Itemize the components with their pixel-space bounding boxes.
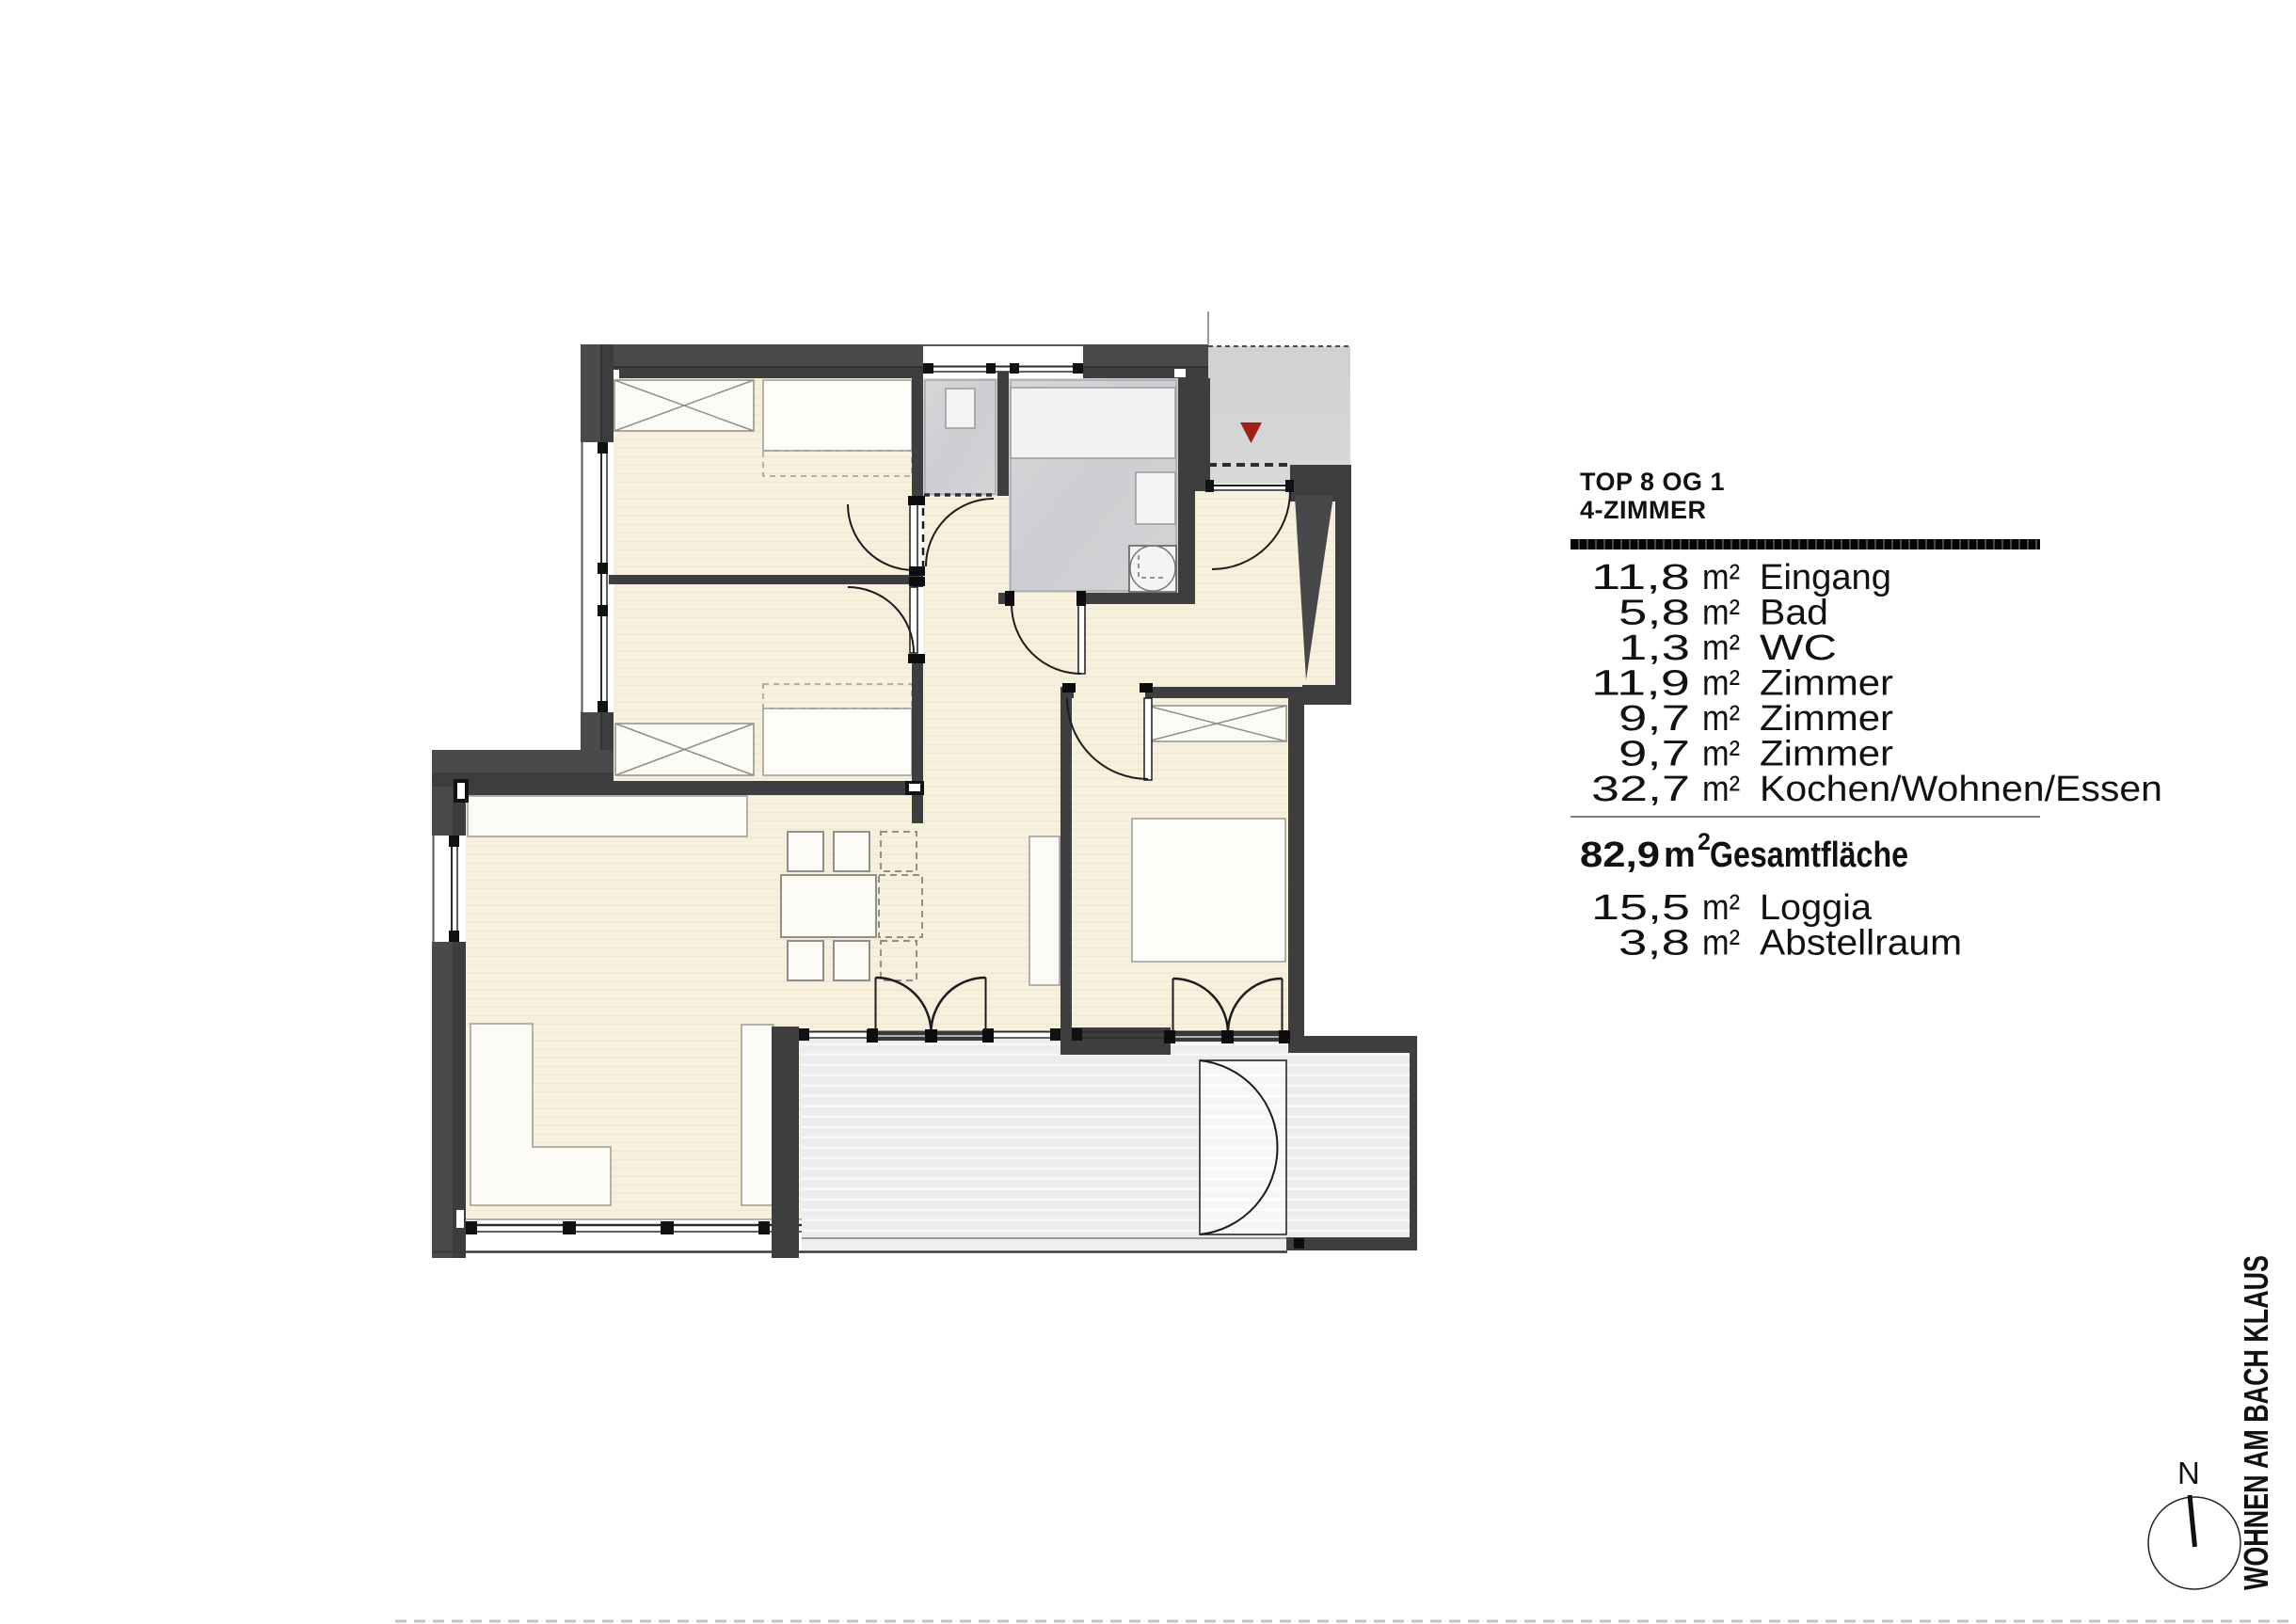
svg-text:TOP 8 OG 1: TOP 8 OG 1: [1580, 468, 1725, 496]
svg-text:Loggia: Loggia: [1760, 888, 1873, 928]
svg-text:Kochen/Wohnen/Essen: Kochen/Wohnen/Essen: [1760, 770, 2162, 809]
svg-text:9,7: 9,7: [1618, 735, 1690, 774]
svg-text:32,7: 32,7: [1591, 770, 1690, 809]
svg-text:WC: WC: [1760, 629, 1837, 668]
svg-text:m: m: [1664, 836, 1696, 875]
svg-text:N: N: [2177, 1456, 2200, 1490]
svg-text:5,8: 5,8: [1618, 594, 1690, 633]
svg-text:WOHNEN AM BACH KLAUS: WOHNEN AM BACH KLAUS: [2237, 1255, 2275, 1590]
svg-text:m²: m²: [1702, 770, 1740, 809]
svg-text:3,8: 3,8: [1618, 924, 1690, 963]
svg-text:9,7: 9,7: [1618, 699, 1690, 739]
svg-text:Bad: Bad: [1760, 594, 1828, 633]
svg-text:m²: m²: [1702, 888, 1740, 928]
svg-text:82,9: 82,9: [1580, 836, 1660, 875]
svg-text:1,3: 1,3: [1618, 629, 1690, 668]
svg-text:m²: m²: [1702, 664, 1740, 704]
svg-text:m²: m²: [1702, 594, 1740, 633]
svg-text:Zimmer: Zimmer: [1760, 735, 1893, 774]
svg-text:Zimmer: Zimmer: [1760, 664, 1893, 704]
svg-text:4-ZIMMER: 4-ZIMMER: [1580, 496, 1707, 524]
svg-text:Eingang: Eingang: [1760, 558, 1891, 597]
svg-text:11,8: 11,8: [1591, 558, 1690, 597]
svg-text:2: 2: [1698, 829, 1711, 855]
svg-text:Zimmer: Zimmer: [1760, 699, 1893, 739]
svg-text:Abstellraum: Abstellraum: [1760, 924, 1962, 963]
svg-text:m²: m²: [1702, 558, 1740, 597]
svg-text:m²: m²: [1702, 699, 1740, 739]
svg-text:m²: m²: [1702, 629, 1740, 668]
svg-text:m²: m²: [1702, 924, 1740, 963]
svg-text:m²: m²: [1702, 735, 1740, 774]
svg-text:15,5: 15,5: [1591, 888, 1690, 928]
svg-text:11,9: 11,9: [1591, 664, 1690, 704]
svg-text:Gesamtfläche: Gesamtfläche: [1710, 836, 1908, 875]
